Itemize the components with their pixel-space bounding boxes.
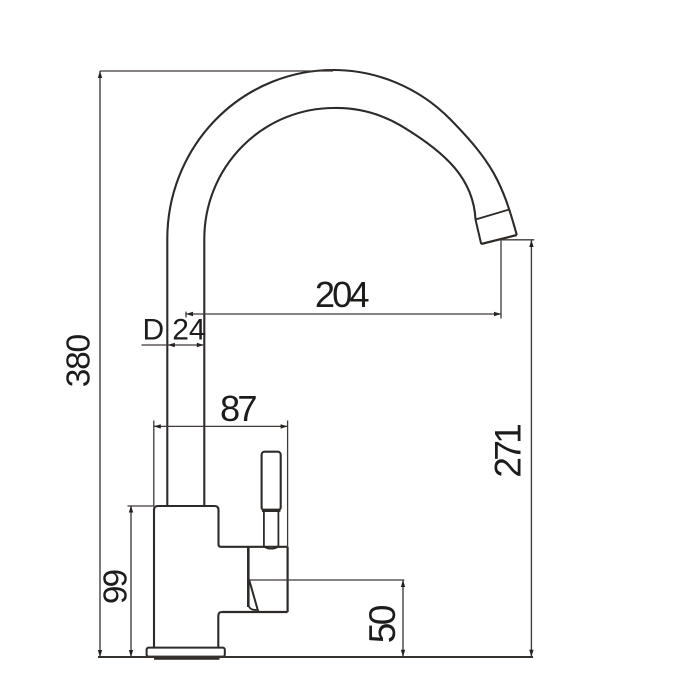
svg-text:99: 99 bbox=[98, 570, 135, 605]
svg-text:204: 204 bbox=[315, 274, 370, 315]
svg-text:87: 87 bbox=[220, 388, 256, 429]
svg-text:50: 50 bbox=[361, 605, 403, 643]
svg-text:271: 271 bbox=[487, 425, 529, 478]
svg-text:380: 380 bbox=[60, 335, 97, 388]
svg-text:D 24: D 24 bbox=[143, 313, 206, 346]
